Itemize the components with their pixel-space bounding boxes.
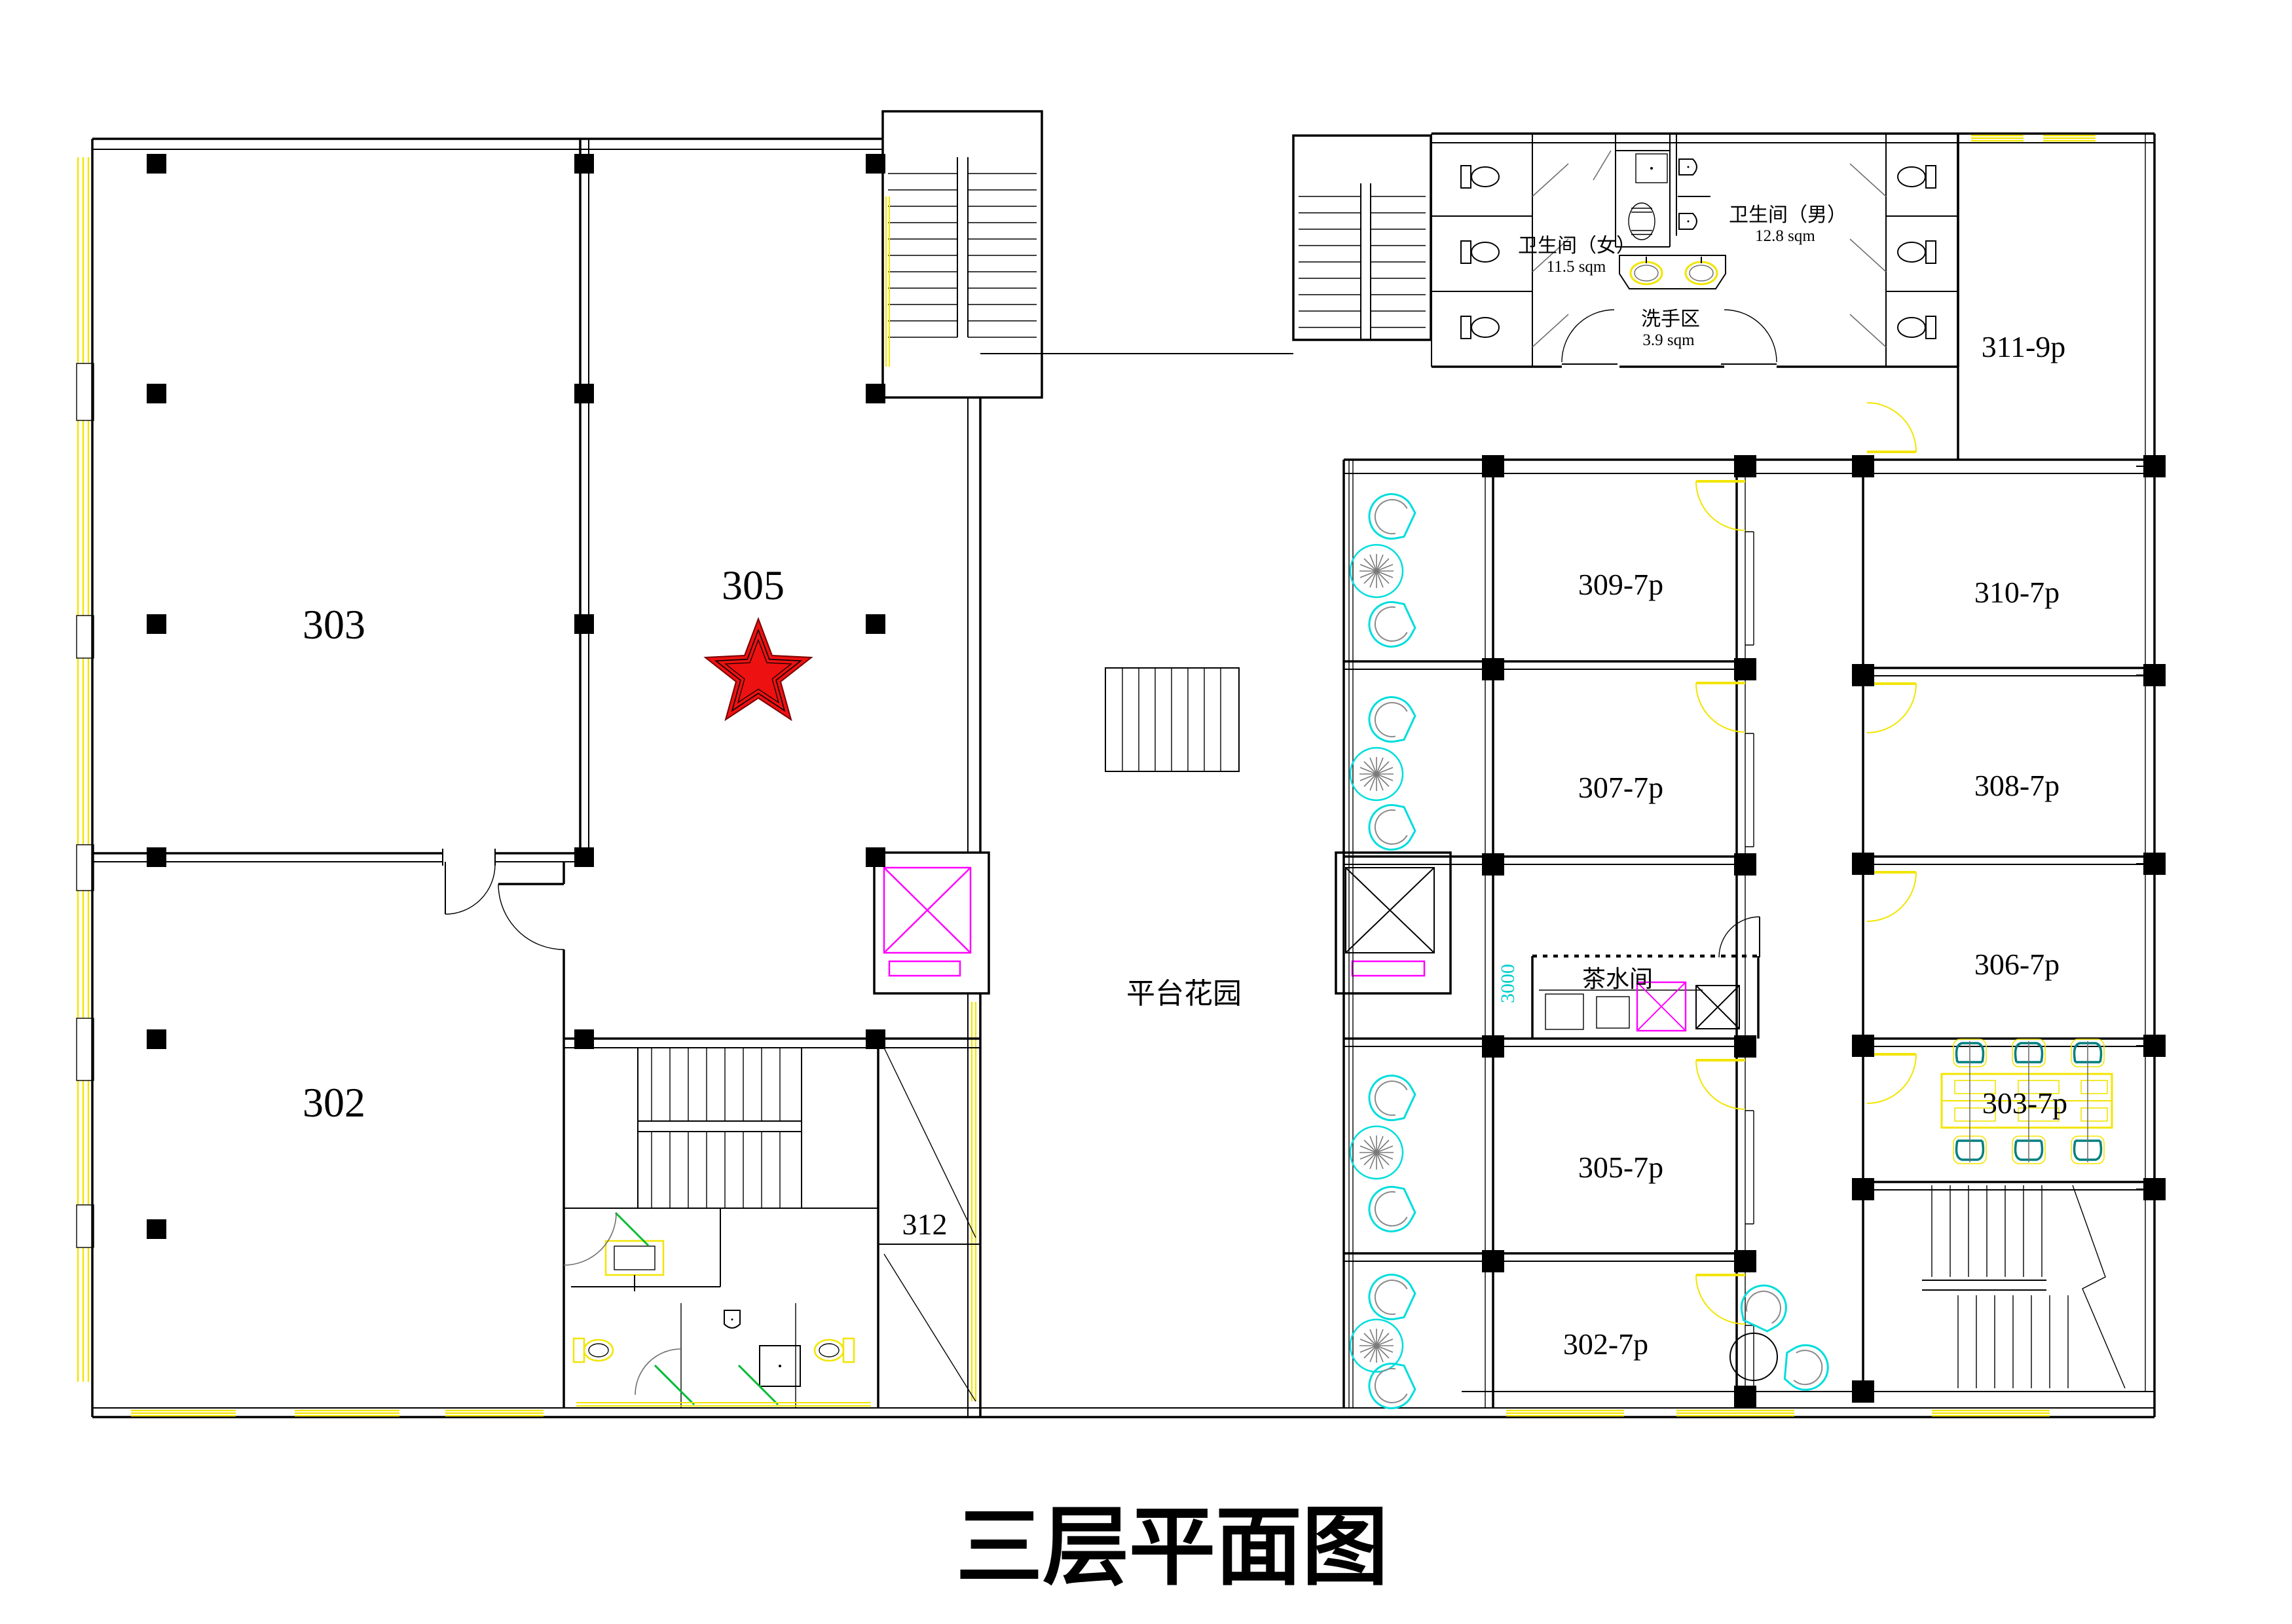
room-label-306-7p: 306-7p: [1974, 948, 2060, 981]
garden-area: [980, 134, 1432, 367]
wc-women-size: 11.5 sqm: [1547, 258, 1606, 276]
room-label-305: 305: [722, 562, 785, 608]
west-wall-piers: [77, 363, 94, 1247]
room-label-303: 303: [303, 601, 365, 648]
floor-plan-page: 303 302 305 312 311-9p 310-7p 308-7p 306…: [0, 0, 2292, 1624]
stairs-garden-icon: [1105, 668, 1239, 771]
room-label-302: 302: [303, 1079, 365, 1126]
room-label-302-7p: 302-7p: [1563, 1327, 1648, 1361]
tea-room-label: 茶水间: [1582, 966, 1653, 992]
room-label-311-9p: 311-9p: [1982, 330, 2066, 363]
bathroom-block: [1432, 134, 1958, 367]
wash-area-label: 洗手区: [1641, 308, 1700, 330]
room-label-308-7p: 308-7p: [1974, 769, 2060, 802]
corridor-dimension-label: 3000: [1497, 964, 1519, 1003]
room-label-312: 312: [902, 1208, 948, 1241]
west-window-glazing: [78, 157, 88, 1382]
wc-women-label: 卫生间（女）: [1518, 235, 1636, 257]
left-wing-walls: [77, 139, 2154, 1417]
east-glazing-left-wing: [972, 1002, 976, 1401]
room-label-307-7p: 307-7p: [1578, 771, 1663, 804]
stairs-top-left-icon: [883, 111, 1042, 397]
wash-basin-icon: [1631, 257, 1717, 284]
room-label-310-7p: 310-7p: [1974, 576, 2060, 609]
wash-area-size: 3.9 sqm: [1642, 331, 1695, 349]
room-doors: [1696, 403, 1916, 1324]
room-label-309-7p: 309-7p: [1578, 568, 1663, 601]
wc-men-label: 卫生间（男）: [1729, 204, 1847, 226]
elevator-left-icon: [874, 853, 989, 993]
room-label-305-7p: 305-7p: [1578, 1151, 1663, 1184]
room-label-303-7p: 303-7p: [1982, 1086, 2067, 1120]
left-wing-bathroom: [564, 1208, 871, 1408]
floor-plan-canvas: 303 302 305 312 311-9p 310-7p 308-7p 306…: [0, 0, 2292, 1624]
south-window-glazing: [131, 1411, 2050, 1416]
page-title: 三层平面图: [956, 1500, 1388, 1596]
balcony-furniture: [1350, 487, 1419, 1415]
wc-men-size: 12.8 sqm: [1755, 227, 1815, 245]
current-location-star-icon: [705, 619, 811, 720]
stairs-top-center-icon: [1293, 136, 1431, 340]
garden-label: 平台花园: [1126, 978, 1242, 1010]
stairs-bottom-right-icon: [1922, 1185, 2125, 1388]
stairs-bottom-middle-icon: [638, 1048, 802, 1208]
